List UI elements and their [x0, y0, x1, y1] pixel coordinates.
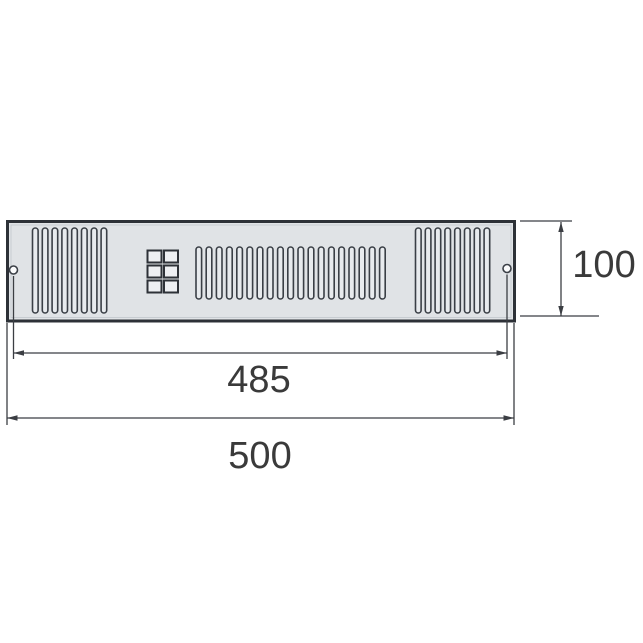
dimension-height-arrow-up — [558, 222, 563, 232]
vent-slot — [72, 228, 78, 313]
vent-slot — [329, 247, 335, 299]
label-grid-cell — [148, 281, 162, 293]
label-grid-cell — [164, 251, 178, 263]
screw-hole-right — [503, 265, 511, 273]
vent-slot — [196, 247, 202, 299]
vent-slot — [62, 228, 68, 313]
vent-slot — [465, 228, 471, 313]
vent-slot — [227, 247, 233, 299]
dimension-overall-width-arrow-left — [7, 415, 18, 421]
dimension-height-label: 100 — [572, 244, 635, 286]
label-grid-cell — [164, 281, 178, 293]
vent-slot — [339, 247, 345, 299]
drawing-canvas: 100 485 500 — [0, 0, 643, 643]
vent-slot — [298, 247, 304, 299]
vent-slot — [33, 228, 39, 313]
vent-slot — [82, 228, 88, 313]
vent-slot — [257, 247, 263, 299]
vent-grille-technical-drawing: 100 485 500 — [0, 0, 643, 643]
vent-slot — [278, 247, 284, 299]
vent-slot — [288, 247, 294, 299]
label-grid-cell — [164, 266, 178, 278]
vent-slot — [91, 228, 97, 313]
vent-slot — [216, 247, 222, 299]
dimension-height-arrow-down — [558, 306, 563, 316]
vent-slot — [52, 228, 58, 313]
dimension-hole-spacing-label: 485 — [227, 359, 290, 401]
grille-panel — [8, 222, 515, 322]
vent-slot — [267, 247, 273, 299]
vent-slot — [435, 228, 441, 313]
vent-slot — [318, 247, 324, 299]
vent-slot — [474, 228, 480, 313]
vent-slot — [42, 228, 48, 313]
vent-slot — [445, 228, 451, 313]
vent-slot — [455, 228, 461, 313]
dimension-hole-spacing-arrow-right — [497, 350, 508, 356]
vent-slot — [484, 228, 490, 313]
dimension-overall-width-arrow-right — [504, 415, 515, 421]
vent-slot — [101, 228, 107, 313]
dimension-overall-width-label: 500 — [228, 435, 291, 477]
vent-slot — [308, 247, 314, 299]
vent-slot — [359, 247, 365, 299]
label-grid-cell — [148, 251, 162, 263]
dimension-hole-spacing-arrow-left — [14, 350, 25, 356]
vent-slot — [416, 228, 422, 313]
vent-slot — [425, 228, 431, 313]
vent-slot — [247, 247, 253, 299]
vent-slot — [369, 247, 375, 299]
screw-hole-left — [10, 266, 18, 274]
label-grid-cell — [148, 266, 162, 278]
vent-slot — [349, 247, 355, 299]
vent-slot — [206, 247, 212, 299]
dimension-height: 100 — [520, 221, 636, 316]
vent-slot — [380, 247, 386, 299]
vent-slot — [237, 247, 243, 299]
